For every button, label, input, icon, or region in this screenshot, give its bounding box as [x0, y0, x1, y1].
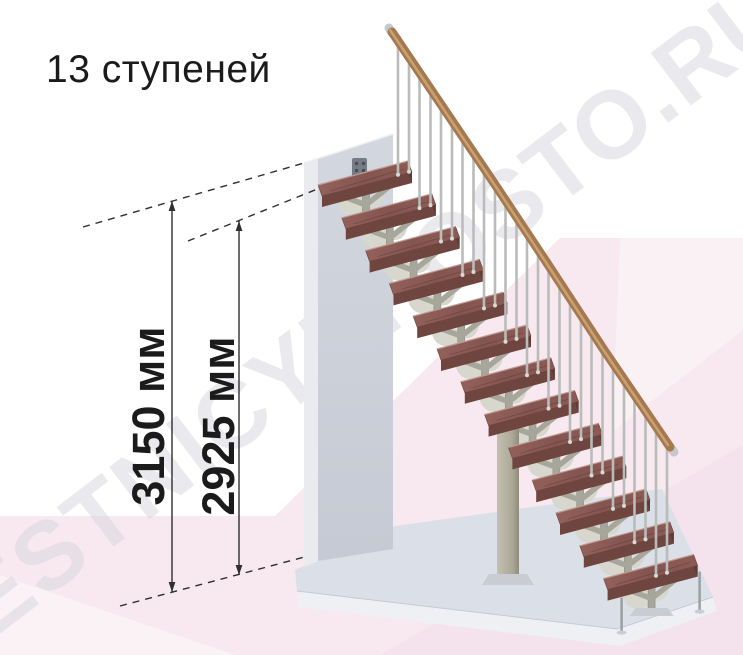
support-rod-foot	[617, 631, 627, 635]
baluster-mount	[568, 440, 572, 444]
support-rod-foot	[695, 610, 705, 614]
baluster-mount	[472, 270, 476, 274]
baluster-mount	[654, 574, 658, 578]
support-column	[497, 415, 519, 575]
baluster-mount	[611, 507, 615, 511]
baluster-mount	[461, 273, 465, 277]
baluster-mount	[579, 437, 583, 441]
bracket-hole	[362, 162, 365, 165]
baluster-mount	[418, 206, 422, 210]
baluster-mount	[536, 370, 540, 374]
baluster-mount	[525, 373, 529, 377]
support-base-plate	[630, 608, 674, 616]
baluster-mount	[482, 306, 486, 310]
dimension-label-step-height: 2925 мм	[193, 336, 244, 515]
baluster-mount	[515, 337, 519, 341]
baluster-mount	[633, 540, 637, 544]
baluster-mount	[644, 537, 648, 541]
baluster-mount	[547, 407, 551, 411]
bracket-hole	[355, 169, 358, 172]
baluster-mount	[590, 473, 594, 477]
baluster-mount	[493, 303, 497, 307]
dimension-label-total-height: 3150 мм	[123, 326, 174, 505]
column-base-plate	[482, 574, 534, 585]
baluster-mount	[396, 173, 400, 177]
baluster-mount	[558, 404, 562, 408]
page-title: 13 ступеней	[46, 48, 271, 91]
baluster-mount	[622, 504, 626, 508]
bracket-hole	[355, 162, 358, 165]
baluster-mount	[665, 571, 669, 575]
baluster-mount	[504, 340, 508, 344]
diagram-canvas: LESTNICYPROSTO.RU 3150 мм 2925 мм	[0, 0, 743, 655]
baluster-mount	[407, 170, 411, 174]
baluster-mount	[601, 471, 605, 475]
baluster-mount	[429, 203, 433, 207]
bracket-hole	[362, 169, 365, 172]
staircase-diagram: LESTNICYPROSTO.RU 3150 мм 2925 мм	[0, 0, 743, 655]
wall-side-face	[304, 158, 318, 567]
baluster-mount	[439, 240, 443, 244]
baluster-mount	[450, 237, 454, 241]
